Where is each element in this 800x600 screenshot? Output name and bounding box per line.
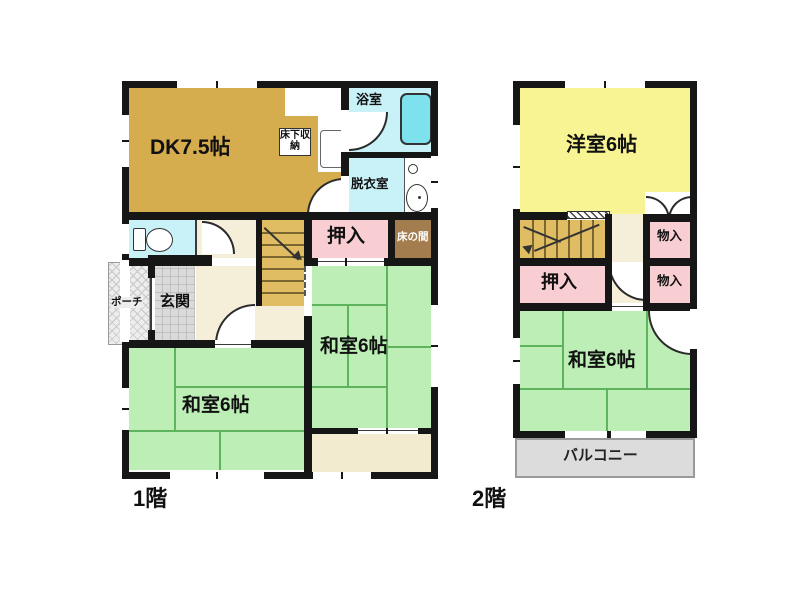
window-tick	[513, 166, 520, 168]
window	[690, 309, 697, 349]
monoire-lower-label: 物入	[657, 275, 682, 288]
floor2-label: 2階	[472, 487, 506, 510]
washitsu-2f-label: 和室6帖	[568, 351, 636, 371]
yoshitsu-label: 洋室6帖	[566, 135, 637, 156]
window-tick	[607, 431, 610, 438]
balcony-label: バルコニー	[563, 448, 638, 464]
window	[611, 431, 646, 438]
floor-plan-canvas: DK7.5帖 床下収納 浴室 脱衣室 押入 床の間 和室6帖 和室6帖 玄関 ポ…	[0, 0, 800, 600]
monoire-upper-label: 物入	[657, 230, 682, 243]
window-tick	[604, 81, 606, 88]
floor2-plan: 洋室6帖 物入 物入 押入 和室6帖 バルコニー 2階	[0, 0, 800, 600]
window	[565, 431, 607, 438]
oshiire-2f-label: 押入	[541, 273, 577, 292]
window-tick	[513, 360, 520, 362]
